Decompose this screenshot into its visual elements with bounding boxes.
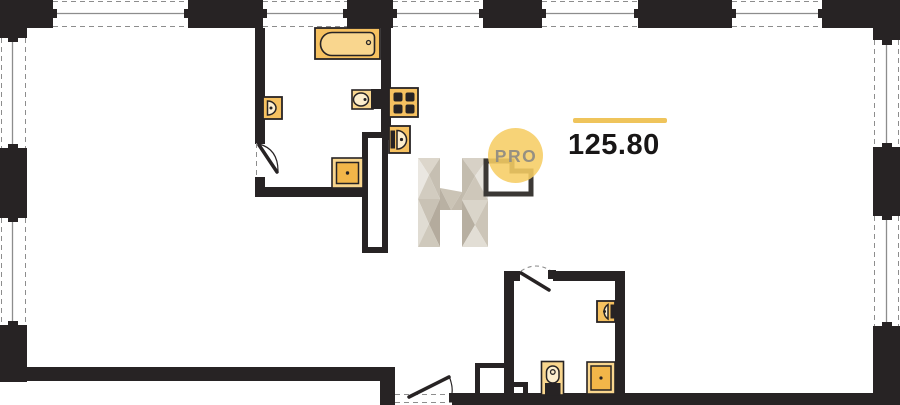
window-tick <box>634 9 641 18</box>
wall-segment <box>347 0 393 28</box>
area-value: 125.80 <box>565 129 675 162</box>
duct-shaft <box>365 135 385 250</box>
door-jamb-tick <box>548 270 556 279</box>
stove-burner <box>394 93 403 102</box>
door-leaf <box>259 145 277 172</box>
wall-segment <box>615 271 625 397</box>
wall-segment <box>504 271 514 397</box>
wall-segment <box>822 0 900 28</box>
window-tick <box>729 9 736 18</box>
window-tick <box>184 9 191 18</box>
brand-logo: PRO <box>400 115 560 260</box>
bathroom-2-door <box>521 266 556 290</box>
shower-drain <box>599 376 602 379</box>
window-top-3 <box>390 2 486 27</box>
window-tick <box>390 9 397 18</box>
wall-segment <box>255 28 265 144</box>
window-tick <box>882 212 892 220</box>
shower-tray-icon <box>332 158 363 188</box>
washbasin-mount <box>391 131 396 149</box>
wall-segment <box>0 148 27 218</box>
washbasin-mount <box>611 305 616 319</box>
window-tick <box>479 9 486 18</box>
wall-segment <box>504 271 520 281</box>
wall-segment <box>873 147 900 216</box>
floor-plan-canvas: PRO 125.80 <box>0 0 900 405</box>
window-tick <box>882 37 892 45</box>
window-tick <box>260 9 267 18</box>
window-left-1 <box>2 34 26 152</box>
gas-stove-icon <box>389 88 418 117</box>
shower-tray-2-icon <box>587 362 615 394</box>
window-tick <box>882 322 892 330</box>
entrance-door <box>395 376 457 403</box>
bathroom-1-walls <box>255 28 391 250</box>
wall-segment <box>553 271 625 281</box>
window-tick <box>882 143 892 151</box>
window-top-1 <box>50 2 191 27</box>
window-tick <box>539 9 546 18</box>
window-tick <box>50 9 57 18</box>
window-tick <box>8 34 18 42</box>
washbasin-tap-dot <box>270 107 273 110</box>
area-label-block: 125.80 <box>565 118 675 162</box>
wall-segment <box>475 363 480 393</box>
window-tick <box>343 9 350 18</box>
wall-segment <box>483 0 542 28</box>
washbasin-2-icon <box>597 301 615 322</box>
wall-segment <box>523 382 528 397</box>
stove-burner <box>394 105 403 114</box>
toilet-flush-dot <box>364 98 367 101</box>
wall-segment <box>381 28 391 140</box>
wall-segment <box>452 393 900 405</box>
toilet-2-icon <box>542 362 564 396</box>
logo-badge-text: PRO <box>495 146 537 166</box>
window-tick <box>818 9 825 18</box>
window-tick <box>8 214 18 222</box>
window-tick <box>8 321 18 329</box>
window-top-2 <box>260 2 350 27</box>
wall-segment <box>0 0 53 28</box>
door-leaf <box>521 273 549 290</box>
bathroom-1-door <box>257 143 279 177</box>
washbasin-tap-dot <box>603 310 606 313</box>
bathtub-icon <box>315 28 380 59</box>
wall-segment <box>0 367 393 381</box>
toilet-tank <box>371 89 382 109</box>
door-jamb-tick <box>449 393 457 402</box>
shower-drain <box>346 171 349 174</box>
stove-burner <box>406 105 415 114</box>
door-swing-arc <box>521 266 551 271</box>
toilet-tank <box>545 383 561 395</box>
toilet-icon <box>352 89 382 109</box>
stove-burner <box>406 93 415 102</box>
wall-segment <box>188 0 263 28</box>
wall-segment <box>380 367 395 405</box>
area-accent-line <box>573 118 667 123</box>
logo-letter-h <box>418 158 488 247</box>
window-top-5 <box>729 2 825 27</box>
wall-segment <box>638 0 732 28</box>
window-right-2 <box>875 212 899 330</box>
window-top-4 <box>539 2 641 27</box>
window-right-1 <box>875 37 899 151</box>
washbasin-icon <box>263 97 282 119</box>
window-tick <box>8 144 18 152</box>
window-left-2 <box>2 214 26 329</box>
